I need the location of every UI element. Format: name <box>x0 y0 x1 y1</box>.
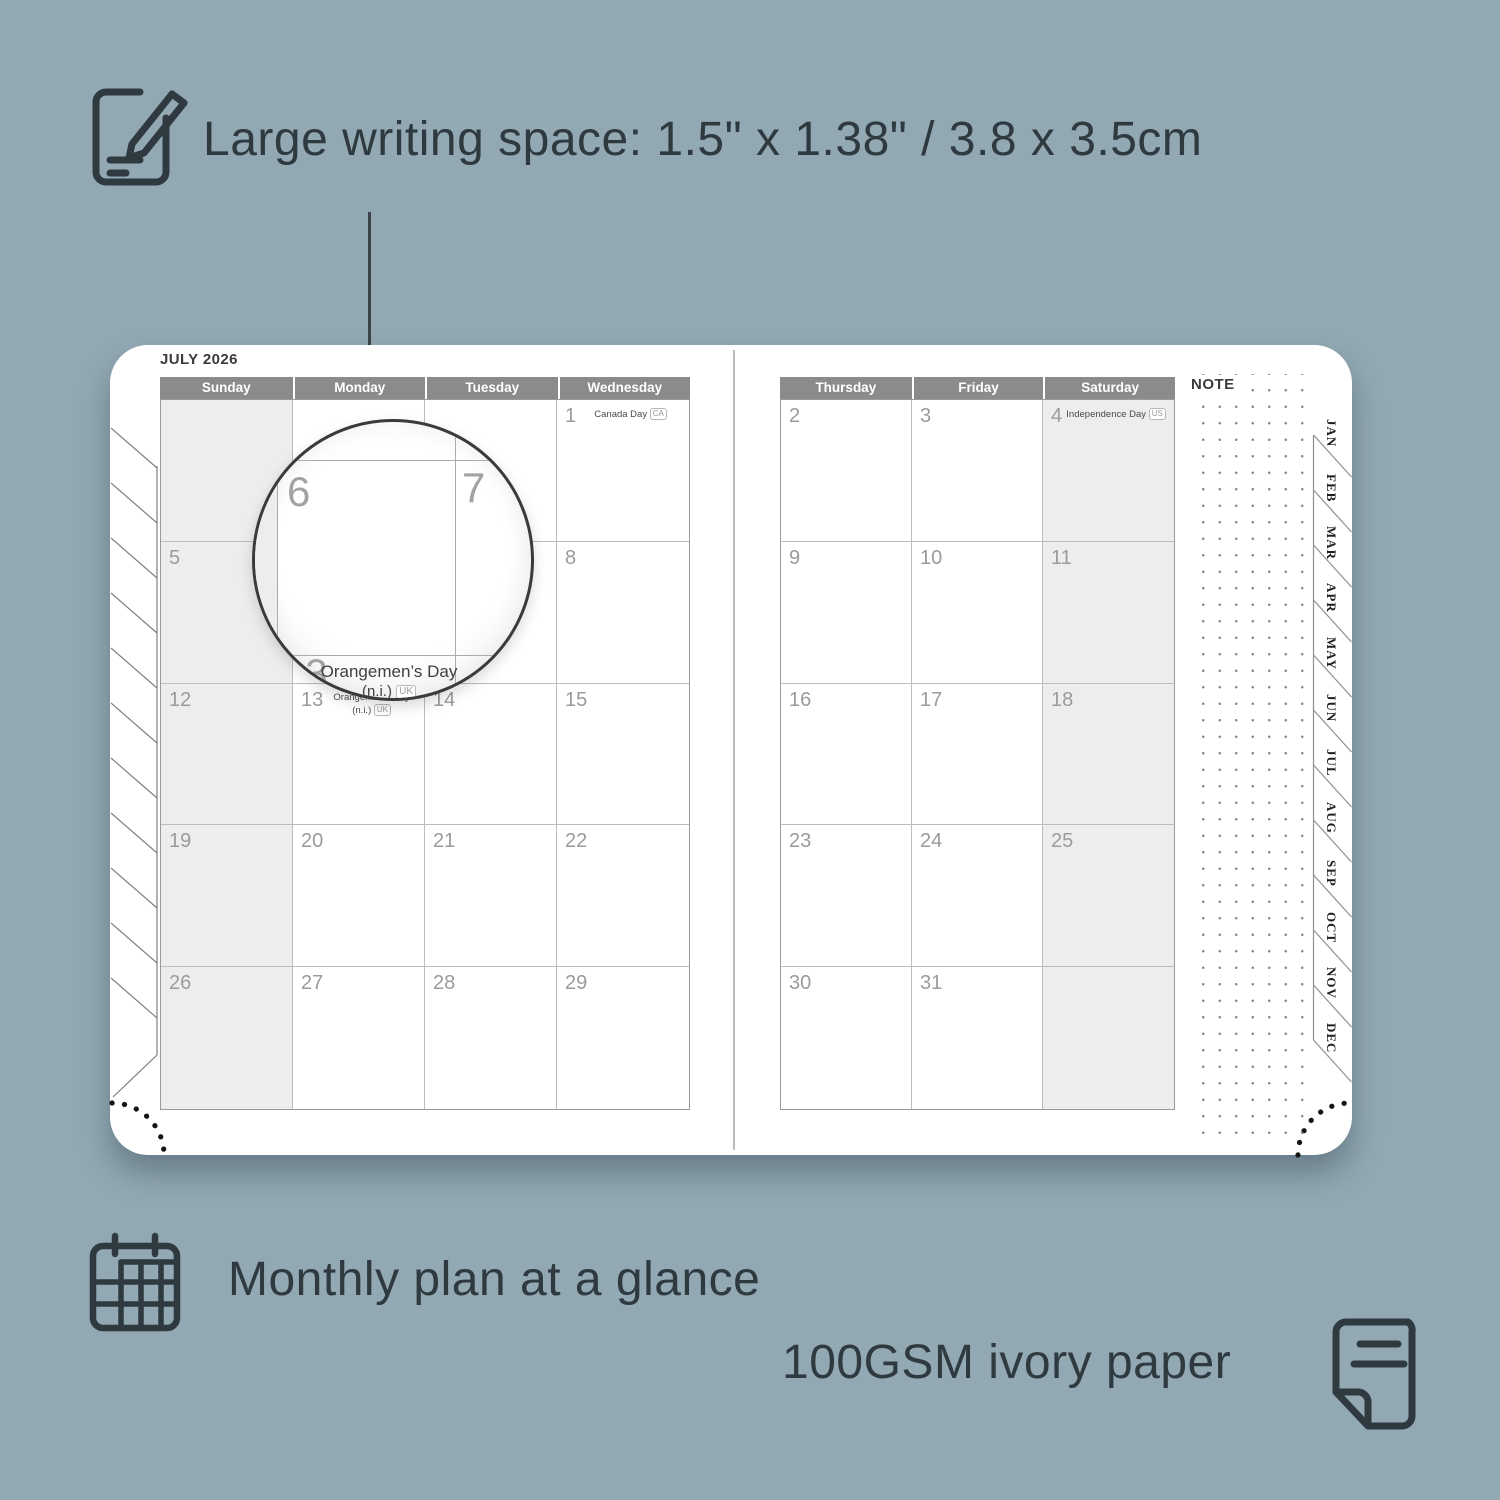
calendar-cell: 11 <box>1043 542 1174 684</box>
calendar-cell: 28 <box>425 967 557 1109</box>
magnified-date-6: 6 <box>287 468 310 516</box>
paper-annotation: 100GSM ivory paper <box>782 1335 1231 1390</box>
magnified-grid-line <box>255 460 531 461</box>
day-header: Wednesday <box>558 377 691 399</box>
magnified-grid-line <box>277 422 278 698</box>
holiday-label: Canada Day CA <box>576 405 685 421</box>
day-header: Thursday <box>780 377 912 399</box>
calendar-cell: 12 <box>161 684 293 826</box>
date-number: 16 <box>789 689 811 711</box>
calendar-cell: 31 <box>912 967 1043 1109</box>
date-number: 10 <box>920 547 942 569</box>
month-tab-jun: JUN <box>1320 685 1342 731</box>
country-badge: CA <box>650 408 667 420</box>
calendar-cell: 26 <box>161 967 293 1109</box>
date-number: 1 <box>565 405 576 427</box>
calendar-cell: 22 <box>557 825 689 967</box>
calendar-cell: 20 <box>293 825 425 967</box>
calendar-cell: 18 <box>1043 684 1174 826</box>
monthly-annotation: Monthly plan at a glance <box>228 1252 760 1307</box>
calendar-cell: 15 <box>557 684 689 826</box>
country-badge: UK <box>396 685 416 699</box>
date-number: 15 <box>565 689 587 711</box>
country-badge: UK <box>374 704 391 716</box>
date-number: 30 <box>789 972 811 994</box>
day-header: Monday <box>293 377 426 399</box>
day-header: Friday <box>912 377 1044 399</box>
country-badge: US <box>1149 408 1166 420</box>
right-day-header-row: ThursdayFridaySaturday <box>780 377 1175 399</box>
month-tab-feb: FEB <box>1320 465 1342 511</box>
calendar-cell: 17 <box>912 684 1043 826</box>
month-tab-jan: JAN <box>1320 410 1342 456</box>
month-tab-sep: SEP <box>1320 850 1342 896</box>
calendar-cell: 30 <box>781 967 912 1109</box>
magnified-holiday: Orangemen’s Day (n.i.) UK <box>313 662 465 701</box>
writing-note-icon <box>88 80 188 190</box>
magnified-grid-line <box>455 422 456 698</box>
calendar-cell: 21 <box>425 825 557 967</box>
date-number: 26 <box>169 972 191 994</box>
calendar-cell: 9 <box>781 542 912 684</box>
month-title: JULY 2026 <box>160 351 238 368</box>
calendar-cell <box>1043 967 1174 1109</box>
month-tab-nov: NOV <box>1320 960 1342 1006</box>
calendar-cell: 29 <box>557 967 689 1109</box>
date-number: 11 <box>1051 547 1072 569</box>
date-number: 25 <box>1051 830 1073 852</box>
month-tab-may: MAY <box>1320 630 1342 676</box>
calendar-cell: 14 <box>425 684 557 826</box>
calendar-cell: 13Orangemen’s Day(n.i.) UK <box>293 684 425 826</box>
date-number: 18 <box>1051 689 1073 711</box>
date-number: 31 <box>920 972 942 994</box>
calendar-cell: 24 <box>912 825 1043 967</box>
date-number: 19 <box>169 830 191 852</box>
magnified-sunday-shade <box>255 422 277 698</box>
date-number: 24 <box>920 830 942 852</box>
date-number: 3 <box>920 405 931 427</box>
date-number: 27 <box>301 972 323 994</box>
date-number: 8 <box>565 547 576 569</box>
month-tab-oct: OCT <box>1320 905 1342 951</box>
date-number: 21 <box>433 830 455 852</box>
paper-icon <box>1322 1316 1422 1432</box>
calendar-cell: 10 <box>912 542 1043 684</box>
month-tab-dec: DEC <box>1320 1015 1342 1061</box>
date-number: 12 <box>169 689 191 711</box>
magnified-date-7: 7 <box>462 464 485 512</box>
date-number: 28 <box>433 972 455 994</box>
date-number: 23 <box>789 830 811 852</box>
date-number: 9 <box>789 547 800 569</box>
calendar-cell: 25 <box>1043 825 1174 967</box>
top-annotation: Large writing space: 1.5" x 1.38" / 3.8 … <box>203 112 1202 167</box>
calendar-cell: 8 <box>557 542 689 684</box>
calendar-cell: 3 <box>912 400 1043 542</box>
calendar-icon <box>85 1232 185 1332</box>
month-tab-aug: AUG <box>1320 795 1342 841</box>
calendar-cell: 4Independence Day US <box>1043 400 1174 542</box>
note-label: NOTE <box>1191 376 1240 393</box>
calendar-cell: 19 <box>161 825 293 967</box>
date-number: 4 <box>1051 405 1062 427</box>
date-number: 29 <box>565 972 587 994</box>
month-tab-apr: APR <box>1320 575 1342 621</box>
date-number: 22 <box>565 830 587 852</box>
right-calendar-grid: 234Independence Day US910111617182324253… <box>780 399 1175 1110</box>
calendar-cell: 27 <box>293 967 425 1109</box>
day-header: Sunday <box>160 377 293 399</box>
calendar-cell: 16 <box>781 684 912 826</box>
date-number: 5 <box>169 547 180 569</box>
note-dot-grid <box>1191 374 1311 1142</box>
calendar-cell: 2 <box>781 400 912 542</box>
left-day-header-row: SundayMondayTuesdayWednesday <box>160 377 690 399</box>
magnifier-circle: 6 7 13 Orangemen’s Day (n.i.) UK <box>252 419 534 701</box>
day-header: Saturday <box>1043 377 1175 399</box>
date-number: 2 <box>789 405 800 427</box>
date-number: 20 <box>301 830 323 852</box>
month-tab-mar: MAR <box>1320 520 1342 566</box>
holiday-label: Independence Day US <box>1062 405 1170 421</box>
calendar-cell: 1Canada Day CA <box>557 400 689 542</box>
month-tab-jul: JUL <box>1320 740 1342 786</box>
calendar-cell: 23 <box>781 825 912 967</box>
day-header: Tuesday <box>425 377 558 399</box>
date-number: 17 <box>920 689 942 711</box>
